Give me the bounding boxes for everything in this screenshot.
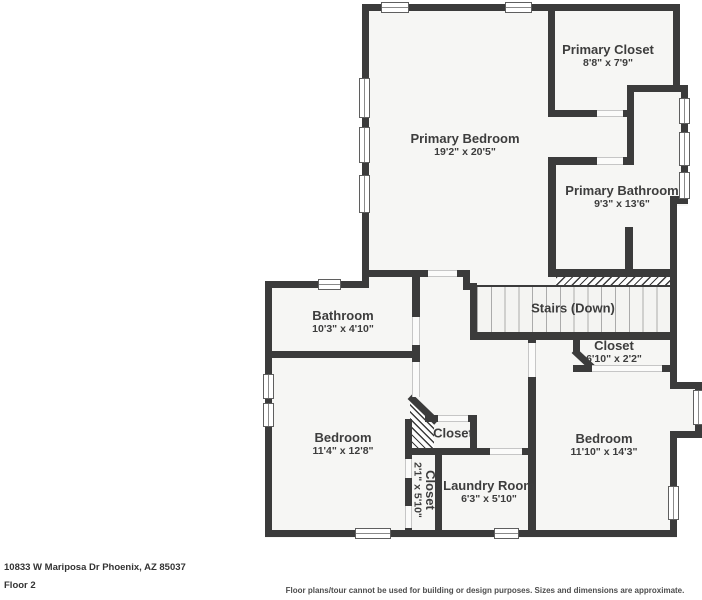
property-address: 10833 W Mariposa Dr Phoenix, AZ 85037	[4, 562, 186, 573]
wall	[548, 157, 556, 277]
window	[668, 486, 679, 520]
room-label-laundry-room: Laundry Room6'3" x 5'10"	[443, 478, 535, 506]
room-label-small-closet: Closet	[433, 425, 473, 440]
wall	[470, 283, 477, 335]
room-label-primary-bathroom: Primary Bathroom9'3" x 13'6"	[565, 183, 678, 211]
wall	[662, 365, 670, 372]
room-label-stairs: Stairs (Down)	[531, 300, 615, 315]
floor-number: Floor 2	[4, 580, 36, 591]
window	[359, 175, 370, 213]
window	[359, 127, 370, 163]
wall	[627, 85, 688, 92]
disclaimer-text: Floor plans/tour cannot be used for buil…	[285, 586, 685, 595]
wall	[627, 85, 634, 165]
wall	[265, 281, 369, 288]
door-opening	[597, 110, 623, 117]
window	[318, 279, 341, 290]
room-label-bedroom-right: Bedroom11'10" x 14'3"	[571, 431, 638, 459]
window	[679, 172, 690, 199]
wall	[625, 227, 633, 270]
wall	[548, 269, 677, 277]
window	[263, 374, 274, 399]
wall	[457, 270, 470, 277]
door-opening	[428, 270, 457, 277]
wall	[405, 448, 490, 455]
door-opening	[438, 415, 468, 422]
floor-plan-canvas: Primary Bedroom19'2" x 20'5" Primary Clo…	[0, 0, 702, 600]
door-opening	[412, 317, 420, 345]
door-opening	[592, 365, 662, 372]
half-wall-hatch	[556, 277, 670, 287]
window	[693, 390, 702, 425]
room-label-bedroom-left: Bedroom11'4" x 12'8"	[312, 430, 373, 458]
door-opening	[412, 362, 420, 397]
wall	[548, 11, 555, 117]
wall	[670, 198, 677, 382]
window	[679, 132, 690, 166]
window	[359, 78, 370, 118]
room-label-primary-closet: Primary Closet8'8" x 7'9"	[562, 42, 654, 70]
wall	[362, 270, 428, 277]
wall	[673, 11, 680, 88]
door-opening	[490, 448, 522, 455]
room-label-hall-closet: Closet6'10" x 2'2"	[586, 338, 642, 366]
door-opening	[528, 343, 536, 377]
window	[494, 528, 519, 539]
wall	[623, 157, 634, 165]
wall	[412, 277, 420, 317]
wall	[463, 277, 470, 290]
wall	[265, 530, 677, 537]
room-label-narrow-closet: Closet2'1" x 5'10"	[411, 462, 437, 518]
door-opening	[597, 157, 623, 165]
window	[505, 2, 532, 13]
window	[263, 403, 274, 427]
room-label-primary-bedroom: Primary Bedroom19'2" x 20'5"	[410, 131, 519, 159]
room-label-bathroom: Bathroom10'3" x 4'10"	[312, 308, 374, 336]
wall	[470, 332, 677, 340]
window	[355, 528, 391, 539]
window	[381, 2, 409, 13]
window	[679, 98, 690, 124]
wall	[670, 431, 677, 537]
wall	[265, 351, 418, 358]
wall	[548, 110, 597, 117]
